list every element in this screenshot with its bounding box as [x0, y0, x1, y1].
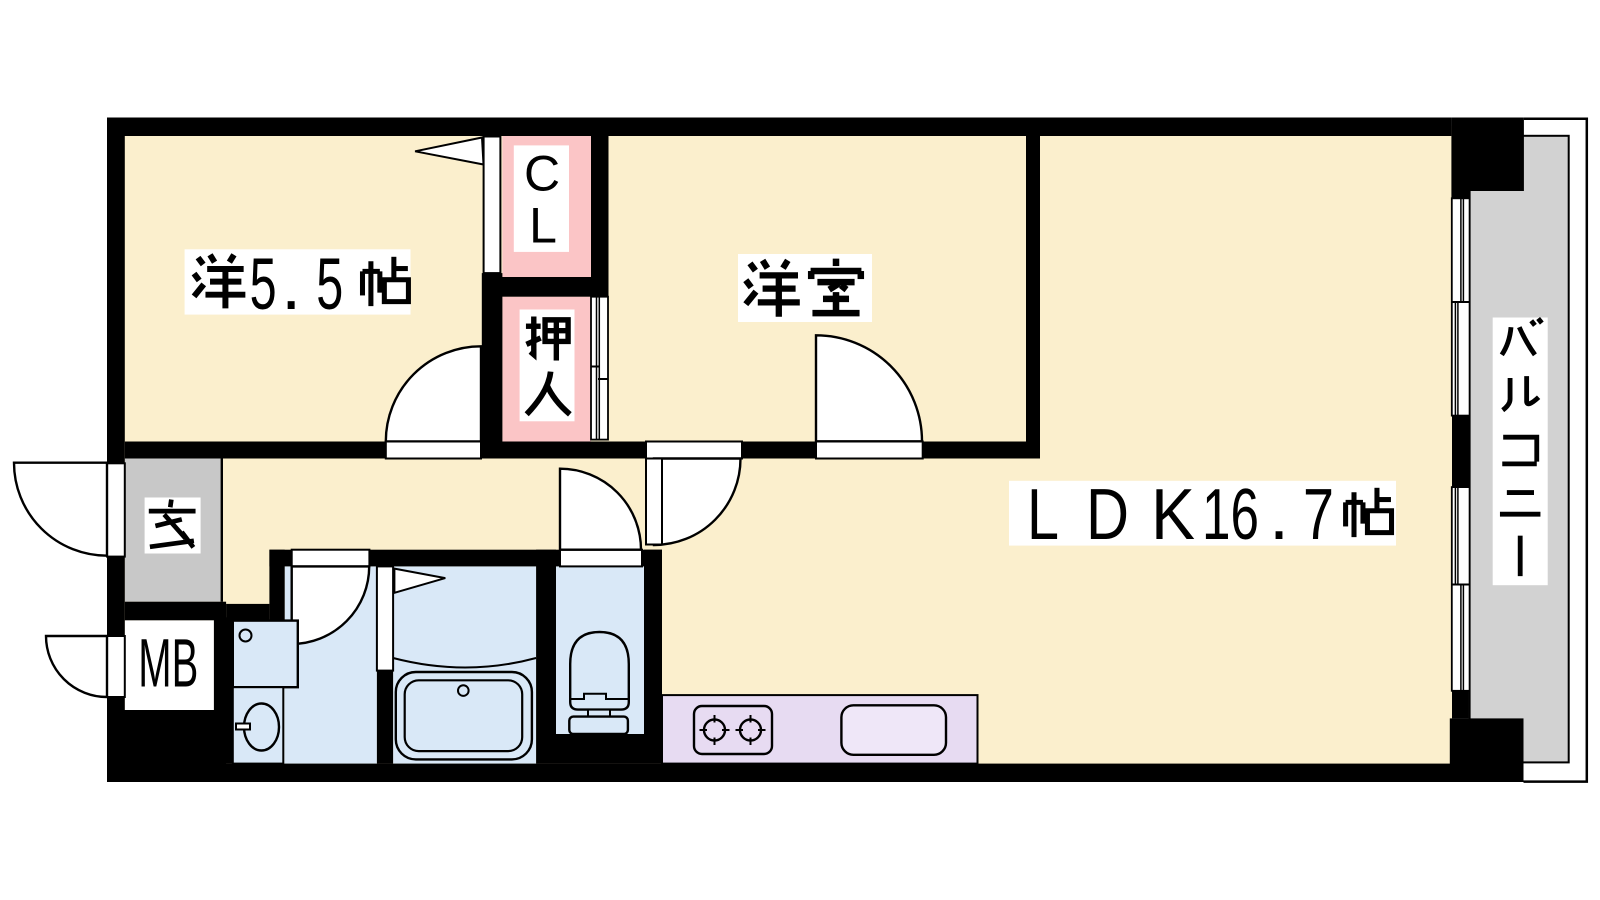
svg-text:16: 16 — [1202, 475, 1259, 555]
svg-text:L: L — [1027, 475, 1059, 555]
svg-text:D: D — [1086, 475, 1129, 555]
svg-text:7: 7 — [1303, 475, 1334, 555]
svg-text:.: . — [1269, 475, 1289, 555]
svg-text:C: C — [524, 146, 560, 202]
svg-text:5: 5 — [316, 244, 343, 325]
svg-text:MB: MB — [138, 625, 198, 702]
svg-text:L: L — [529, 198, 557, 254]
svg-text:.: . — [281, 244, 301, 325]
svg-text:5: 5 — [250, 244, 277, 325]
svg-text:K: K — [1151, 475, 1195, 555]
